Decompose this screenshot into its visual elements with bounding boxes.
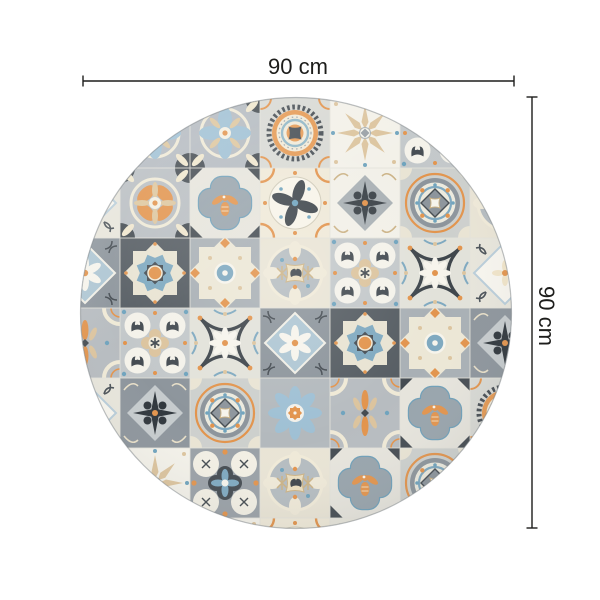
rug-tile-diagwhite xyxy=(50,98,120,168)
rug-tile-snowflake xyxy=(470,448,540,518)
rug-tile-diagwhite xyxy=(470,98,540,168)
rug-tile-snowflake xyxy=(190,518,260,588)
rug-tile-snowflake xyxy=(50,518,120,588)
product-diagram: 90 cm 90 cm xyxy=(0,0,600,600)
rug-tile-crossstarW xyxy=(50,448,120,518)
dimension-label-height: 90 cm xyxy=(534,286,559,346)
dimension-label-width: 90 cm xyxy=(268,54,328,79)
rug-tile-diagwhite xyxy=(330,518,400,588)
rug-shading-overlay xyxy=(81,98,512,529)
rug-image xyxy=(34,83,551,600)
rug-tile-diagwhite xyxy=(120,518,190,588)
product-diagram-stage: 90 cm 90 cm xyxy=(0,0,600,600)
rug-tile-snowflake xyxy=(400,518,470,588)
